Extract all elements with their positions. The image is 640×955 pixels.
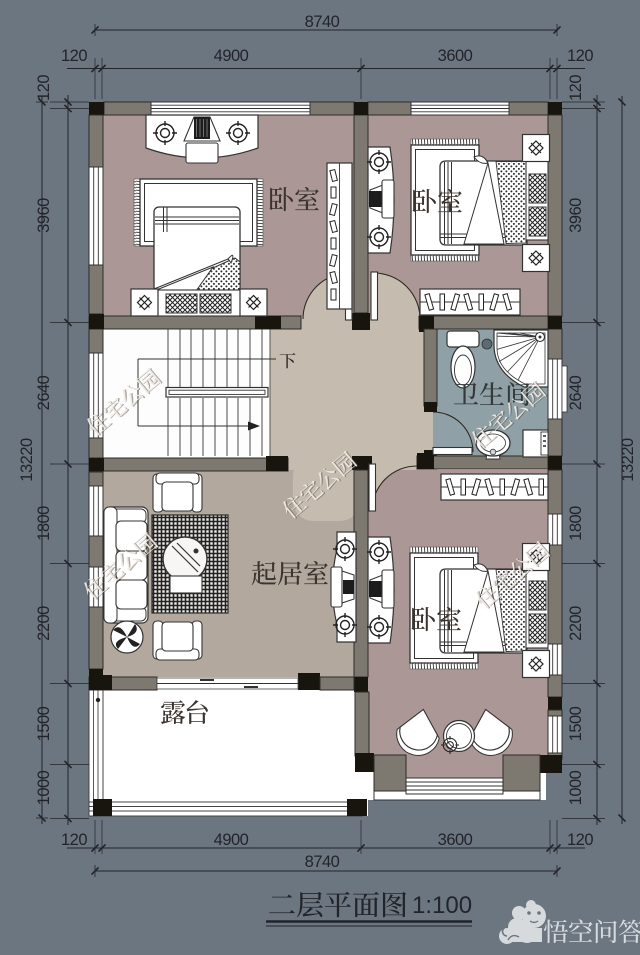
svg-text:4900: 4900 <box>214 831 249 849</box>
svg-text:2200: 2200 <box>567 606 585 641</box>
svg-text:3600: 3600 <box>438 831 473 849</box>
svg-text:120: 120 <box>567 75 585 101</box>
svg-text:8740: 8740 <box>305 853 340 871</box>
svg-text:1000: 1000 <box>35 770 53 805</box>
svg-text:1500: 1500 <box>567 706 585 741</box>
svg-text:120: 120 <box>567 47 593 65</box>
svg-text:1800: 1800 <box>567 506 585 541</box>
svg-text:3960: 3960 <box>567 198 585 233</box>
svg-text:2640: 2640 <box>35 375 53 410</box>
svg-text:3960: 3960 <box>35 198 53 233</box>
svg-text:3600: 3600 <box>438 47 473 65</box>
svg-text:1500: 1500 <box>35 706 53 741</box>
svg-text:120: 120 <box>61 47 87 65</box>
svg-text:1:100: 1:100 <box>412 892 472 919</box>
svg-text:13220: 13220 <box>18 438 36 482</box>
svg-text:120: 120 <box>61 831 87 849</box>
svg-text:1000: 1000 <box>567 770 585 805</box>
svg-text:8740: 8740 <box>305 13 340 31</box>
svg-text:1800: 1800 <box>35 506 53 541</box>
svg-text:4900: 4900 <box>214 47 249 65</box>
svg-text:120: 120 <box>567 831 593 849</box>
svg-text:2200: 2200 <box>35 606 53 641</box>
svg-text:120: 120 <box>35 75 53 101</box>
svg-text:13220: 13220 <box>619 438 637 482</box>
svg-text:2640: 2640 <box>567 375 585 410</box>
